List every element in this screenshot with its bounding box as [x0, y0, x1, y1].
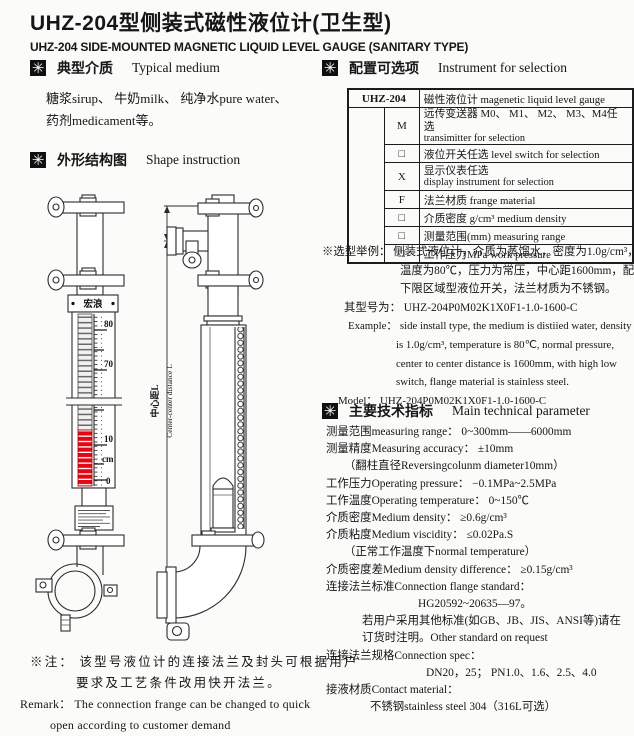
flange-joint	[207, 321, 239, 325]
param-line: DN20，25； PN1.0、1.6、2.5、4.0	[426, 665, 621, 682]
table-row: □ 测量范围(mm) measuring range	[348, 227, 633, 245]
param-line: 订货时注明。Other standard on request	[362, 630, 621, 647]
flange-joint	[204, 316, 242, 321]
option-code: X	[384, 163, 419, 191]
bottom-elbow	[157, 546, 246, 640]
scale-label-70: 70	[104, 359, 114, 369]
flower-icon: ✳	[322, 403, 338, 419]
scale-label-80: 80	[104, 319, 114, 329]
side-chamber	[201, 325, 246, 535]
note-line-en: Remark： The connection frange can be cha…	[20, 694, 359, 715]
section-title-en: Typical medium	[132, 60, 220, 76]
flipper-column	[78, 314, 92, 430]
param-line: （翻柱直径Reversingcolunm diameter10mm）	[344, 458, 621, 475]
example-line: ※选型举例： 侧装式液位计，介质为蒸馏水，密度为1.0g/cm³，	[322, 243, 634, 262]
param-line: 连接法兰规格Connection spec：	[326, 648, 621, 665]
clamp-ring	[48, 564, 102, 618]
scale-panel: 80 70 10 cm 0	[66, 312, 122, 488]
section-title-cn: 配置可选项	[349, 58, 419, 78]
elbow-clamp-plate	[157, 572, 167, 618]
param-line: 测量精度Measuring accuracy： ±10mm	[326, 441, 621, 458]
wing-nut	[252, 532, 264, 548]
page-title: UHZ-204型侧装式磁性液位计(卫生型)	[30, 7, 468, 37]
brand-plate: 宏浪	[68, 295, 118, 312]
side-process-connection	[167, 227, 208, 268]
section-title-en: Instrument for selection	[438, 60, 567, 76]
gauge-front-view: 宏浪 80 70 10 cm 0	[36, 195, 124, 631]
section-shape-instruction: ✳ 外形结构图 Shape instruction	[30, 150, 240, 170]
option-desc: 法兰材质 frange material	[419, 191, 633, 209]
selection-table: UHZ-204 磁性液位计 magenetic liquid level gau…	[347, 88, 634, 264]
param-line: （正常工作温度下normal temperature）	[344, 544, 621, 561]
section-title-cn: 主要技术指标	[349, 401, 433, 421]
option-code: □	[384, 209, 419, 227]
example-line-en: switch, flange material is stainless ste…	[396, 373, 634, 392]
nameplate	[75, 488, 113, 530]
flower-icon: ✳	[30, 60, 46, 76]
param-line: 若用户采用其他标准(如GB、JB、JIS、ANSI等)请在	[362, 613, 621, 630]
technical-parameters: 测量范围measuring range： 0~300mm——6000mm 测量精…	[326, 424, 621, 716]
scale-label-0: 0	[106, 476, 111, 486]
clamp-fitting	[48, 528, 124, 550]
medium-line: 药剂medicament等。	[46, 110, 288, 132]
section-title-cn: 典型介质	[57, 58, 113, 78]
section-typical-medium: ✳ 典型介质 Typical medium	[30, 58, 220, 78]
table-row: X 显示仪表任选 display instrument for selectio…	[348, 163, 633, 191]
param-line: 工作压力Operating pressure： −0.1MPa~2.5MPa	[326, 476, 621, 493]
flipper-chain	[235, 327, 244, 529]
table-row: □ 液位开关任选 level switch for selection	[348, 145, 633, 163]
clamp-fitting	[48, 195, 124, 217]
side-tube-neck	[208, 286, 238, 316]
section-main-parameters: ✳ 主要技术指标 Main technical parameter	[322, 401, 590, 421]
table-row: F 法兰材质 frange material	[348, 191, 633, 209]
table-row: UHZ-204 磁性液位计 magenetic liquid level gau…	[348, 89, 633, 108]
option-code: F	[384, 191, 419, 209]
remark-note: ※注： 该型号液位计的连接法兰及封头可根据用户 要求及工艺条件改用快开法兰。 R…	[30, 652, 359, 736]
param-line: 测量范围measuring range： 0~300mm——6000mm	[326, 424, 621, 441]
note-line-en: open according to customer demand	[50, 715, 359, 736]
gauge-side-view: 中心距L Center-center distance L	[149, 195, 264, 640]
section-title-cn: 外形结构图	[57, 150, 127, 170]
model-desc-cell: 磁性液位计 magenetic liquid level gauge	[419, 89, 633, 108]
example-line-en: Example： side install type, the medium i…	[348, 317, 634, 336]
flower-icon: ✳	[322, 60, 338, 76]
param-line: 接液材质Contact material：	[326, 682, 621, 699]
param-line: 介质密度Medium density： ≥0.6g/cm³	[326, 510, 621, 527]
example-line-en: is 1.0g/cm³, temperature is 80℃, normal …	[396, 336, 634, 355]
example-model-cn: 其型号为： UHZ-204P0M02K1X0F1-1.0-1600-C	[344, 299, 634, 318]
dimension-label-cn: 中心距L	[149, 384, 160, 417]
float	[211, 478, 235, 532]
table-row: M 远传变送器 M0、 M1、 M2、 M3、M4任选 transimitter…	[348, 108, 633, 145]
option-desc: 测量范围(mm) measuring range	[419, 227, 633, 245]
section-instrument-selection: ✳ 配置可选项 Instrument for selection	[322, 58, 567, 78]
clamp-fitting	[198, 195, 263, 217]
option-code: □	[384, 227, 419, 245]
example-line: 下限区域型液位开关，法兰材质为不锈钢。	[400, 280, 634, 299]
model-code-cell: UHZ-204	[348, 89, 419, 108]
scale-label-10: 10	[104, 434, 114, 444]
medium-line: 糖浆sirup、 牛奶milk、 纯净水pure water、	[46, 88, 288, 110]
typical-medium-text: 糖浆sirup、 牛奶milk、 纯净水pure water、 药剂medica…	[46, 88, 288, 131]
example-line: 温度为80℃，压力为常压，中心距1600mm，配上	[400, 262, 634, 281]
flower-icon: ✳	[30, 152, 46, 168]
note-line-cn: 要求及工艺条件改用快开法兰。	[76, 673, 359, 694]
param-line: 连接法兰标准Connection flange standard：	[326, 579, 621, 596]
note-line-cn: ※注： 该型号液位计的连接法兰及封头可根据用户	[30, 652, 359, 673]
table-row: □ 介质密度 g/cm³ medium density	[348, 209, 633, 227]
option-code: □	[384, 145, 419, 163]
param-line: 介质粘度Medium viscidity： ≤0.02Pa.S	[326, 527, 621, 544]
page-subtitle: UHZ-204 SIDE-MOUNTED MAGNETIC LIQUID LEV…	[30, 40, 468, 54]
selection-example: ※选型举例： 侧装式液位计，介质为蒸馏水，密度为1.0g/cm³， 温度为80℃…	[322, 243, 634, 410]
option-desc: 介质密度 g/cm³ medium density	[419, 209, 633, 227]
shape-drawing: 宏浪 80 70 10 cm 0	[20, 183, 320, 650]
param-line: 不锈钢stainless steel 304（316L可选）	[370, 699, 621, 716]
bottom-elbow-clamp	[36, 546, 117, 631]
clamp-bolt	[61, 615, 70, 631]
page-header: UHZ-204型侧装式磁性液位计(卫生型) UHZ-204 SIDE-MOUNT…	[30, 7, 468, 54]
scale-label-cm: cm	[102, 454, 114, 464]
option-code: M	[384, 108, 419, 145]
option-desc: 显示仪表任选 display instrument for selection	[419, 163, 633, 191]
section-title-en: Shape instruction	[146, 152, 240, 168]
dimension-label-en: Center-center distance L	[165, 364, 174, 438]
spacer-cell	[348, 108, 384, 264]
tube-break	[66, 398, 122, 405]
red-level-column	[78, 430, 92, 486]
example-line-en: center to center distance is 1600mm, wit…	[396, 355, 634, 374]
param-line: HG20592~20635—97。	[418, 596, 621, 613]
section-title-en: Main technical parameter	[452, 403, 590, 419]
clamp-fitting	[48, 268, 124, 290]
brand-label: 宏浪	[83, 298, 103, 310]
param-line: 工作温度Operating temperature： 0~150℃	[326, 493, 621, 510]
option-desc: 远传变送器 M0、 M1、 M2、 M3、M4任选 transimitter f…	[419, 108, 633, 145]
option-desc: 液位开关任选 level switch for selection	[419, 145, 633, 163]
param-line: 介质密度差Medium density difference： ≥0.15g/c…	[326, 562, 621, 579]
